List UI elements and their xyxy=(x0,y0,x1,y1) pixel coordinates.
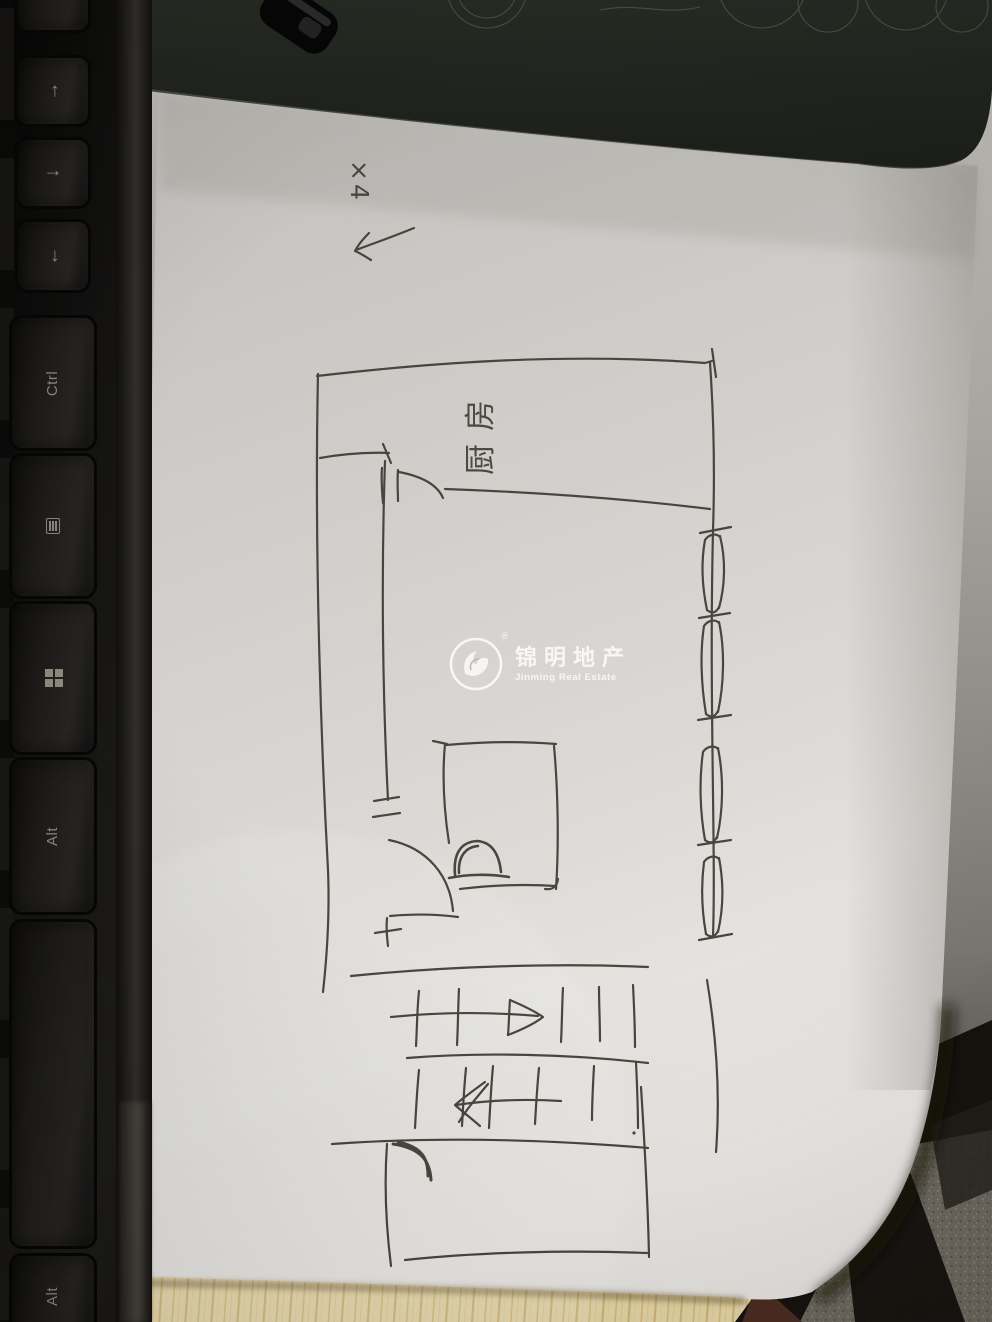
alt-key-bottom-label: Alt xyxy=(44,1286,61,1305)
room-label: 厨房 xyxy=(455,367,507,475)
ctrl-key-label: Ctrl xyxy=(44,370,61,395)
watermark-logo-icon: ® xyxy=(448,636,504,692)
arrow-left-glyph: ← xyxy=(42,246,64,266)
keyboard: → ↓ ← Ctrl Alt xyxy=(0,0,152,1322)
keyboard-frame-lower xyxy=(120,1102,150,1322)
arrow-left-key: ← xyxy=(18,222,88,290)
photo-scene: ×4 厨房 ® 锦明地产 Jinming Real Estate → ↓ xyxy=(0,0,992,1322)
menu-key xyxy=(12,456,94,596)
alt-key: Alt xyxy=(12,760,94,912)
arrow-right-key: → xyxy=(18,58,88,124)
handwritten-note: ×4 xyxy=(340,160,374,222)
windows-key xyxy=(12,604,94,752)
registered-mark: ® xyxy=(501,631,508,641)
watermark-brand-en: Jinming Real Estate xyxy=(515,672,631,683)
arrow-right-glyph: → xyxy=(42,81,64,101)
ctrl-key: Ctrl xyxy=(12,318,94,448)
arrow-down-key: ↓ xyxy=(18,140,88,206)
watermark: ® 锦明地产 Jinming Real Estate xyxy=(448,636,631,692)
watermark-brand-cn: 锦明地产 xyxy=(515,646,631,670)
space-key xyxy=(12,922,94,1246)
alt-key-bottom: Alt xyxy=(12,1256,94,1322)
alt-key-label: Alt xyxy=(44,826,61,845)
windows-icon xyxy=(45,670,62,687)
menu-icon xyxy=(46,518,60,534)
arrow-down-glyph: ↓ xyxy=(42,168,64,178)
key-partial-top xyxy=(18,0,88,30)
